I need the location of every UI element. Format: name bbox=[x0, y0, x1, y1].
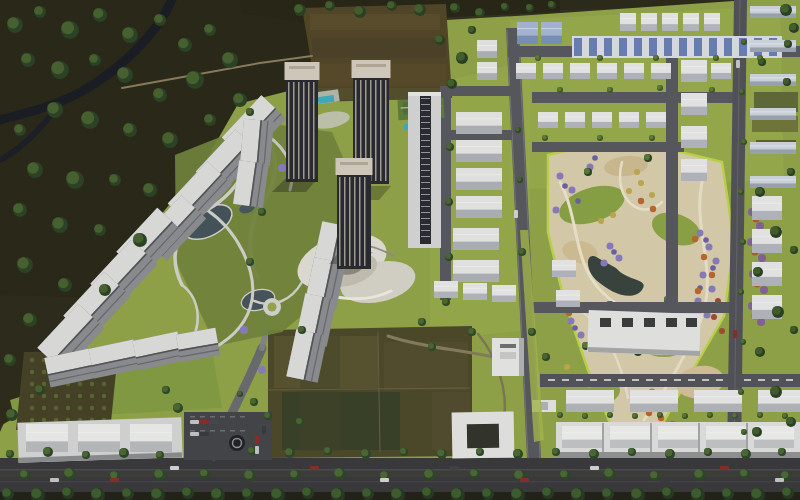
atmosphere bbox=[0, 0, 800, 500]
scene-svg bbox=[0, 0, 800, 500]
scene-root bbox=[0, 0, 800, 500]
atmosphere bbox=[0, 0, 800, 500]
township-aerial-render bbox=[0, 0, 800, 500]
